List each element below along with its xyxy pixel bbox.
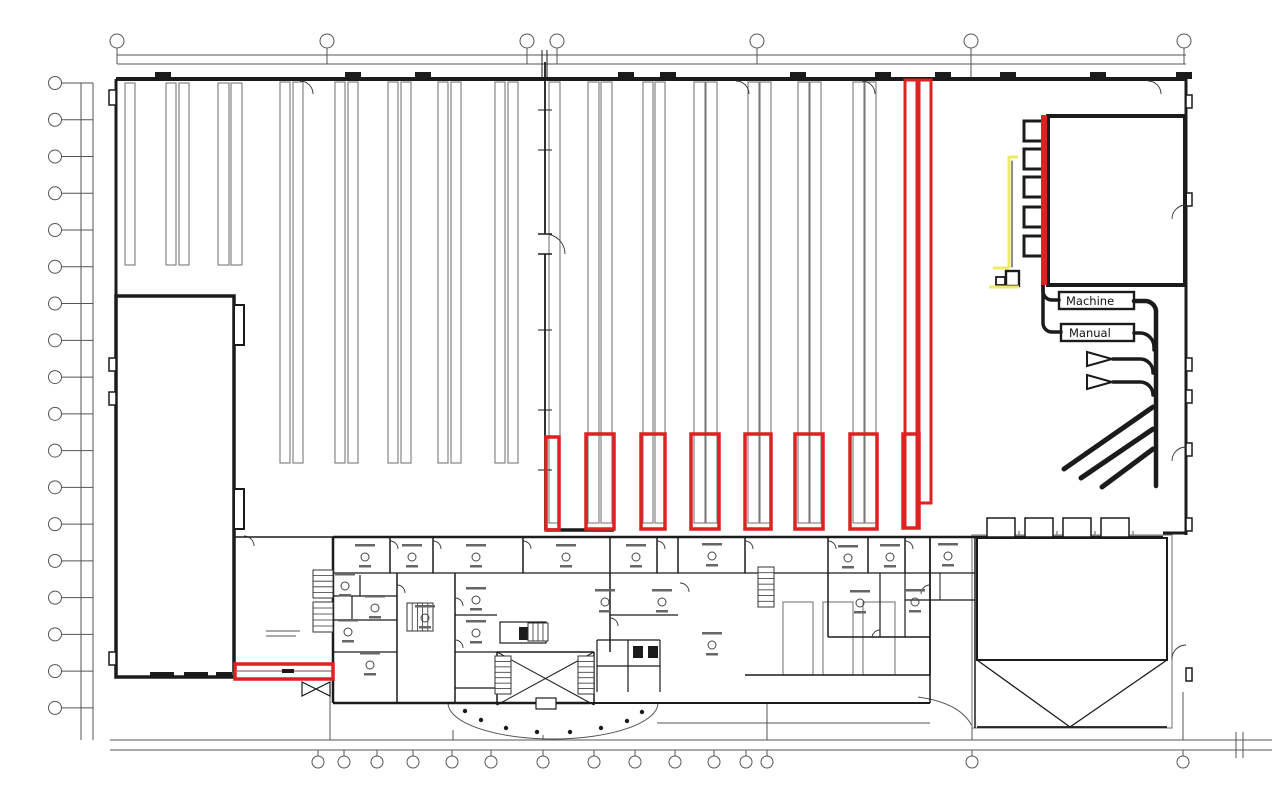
- room-label-mark: [560, 565, 572, 568]
- grid-bubble: [49, 297, 62, 310]
- storage-rack: [293, 82, 303, 463]
- structure-box: [234, 305, 244, 345]
- solid-block: [1000, 72, 1016, 79]
- grid-bubble: [49, 77, 62, 90]
- structure-box: [1186, 95, 1192, 108]
- room-label-mark: [838, 545, 858, 548]
- solid-block: [633, 646, 643, 658]
- storage-rack: [438, 82, 448, 463]
- structure-box: [536, 698, 556, 709]
- room-label-mark: [359, 565, 371, 568]
- grid-bubble: [740, 756, 752, 768]
- storage-rack: [451, 82, 461, 463]
- room-label-mark: [702, 632, 722, 635]
- stairs: [313, 570, 333, 598]
- room-label-mark: [415, 605, 435, 608]
- solid-block: [875, 72, 891, 79]
- room-label-mark: [402, 544, 422, 547]
- storage-rack: [588, 82, 599, 523]
- solid-block: [282, 669, 294, 673]
- room-label-mark: [360, 652, 380, 655]
- solid-block: [345, 72, 361, 79]
- grid-bubble: [49, 224, 62, 237]
- room-label-mark: [365, 595, 385, 598]
- solid-block: [184, 672, 208, 677]
- grid-bubble: [629, 756, 641, 768]
- structure-box: [996, 277, 1005, 285]
- room-label-mark: [556, 544, 576, 547]
- structure-box: [1063, 518, 1091, 537]
- structure-box: [987, 518, 1015, 537]
- storage-rack: [810, 82, 821, 523]
- plaza-dot: [504, 726, 508, 730]
- room-label-mark: [364, 673, 376, 676]
- room-label-mark: [706, 564, 718, 567]
- structure-box: [1101, 518, 1129, 537]
- room-label-mark: [942, 564, 954, 567]
- room-label-mark: [342, 640, 354, 643]
- room-label-mark: [884, 565, 896, 568]
- plaza-dot: [625, 719, 629, 723]
- room-label-mark: [909, 610, 921, 613]
- grid-bubble: [964, 34, 978, 48]
- grid-bubble: [49, 554, 62, 567]
- storage-rack: [495, 82, 505, 463]
- plaza-dot: [463, 709, 467, 713]
- storage-rack: [694, 82, 705, 523]
- grid-bubble: [49, 187, 62, 200]
- storage-rack: [401, 82, 411, 463]
- structure-box: [1186, 390, 1192, 403]
- room-label-mark: [938, 543, 958, 546]
- solid-block: [648, 646, 658, 658]
- storage-rack: [231, 83, 242, 265]
- grid-bubble: [49, 628, 62, 641]
- grid-bubble: [761, 756, 773, 768]
- room-label-mark: [335, 573, 355, 576]
- grid-bubble: [110, 34, 124, 48]
- solid-block: [150, 672, 174, 677]
- storage-rack: [335, 82, 345, 463]
- plaza-dot: [568, 730, 572, 734]
- room-label-mark: [470, 641, 482, 644]
- grid-bubble: [520, 34, 534, 48]
- grid-bubble: [49, 444, 62, 457]
- grid-bubble: [446, 756, 458, 768]
- room-label-mark: [656, 610, 668, 613]
- room-label-mark: [880, 544, 900, 547]
- room-label-mark: [470, 608, 482, 611]
- structure-box: [1186, 668, 1192, 681]
- solid-block: [155, 72, 171, 79]
- room-label-mark: [626, 544, 646, 547]
- grid-bubble: [49, 260, 62, 273]
- structure-box: [116, 296, 234, 677]
- grid-bubble: [588, 756, 600, 768]
- plaza-dot: [599, 726, 603, 730]
- solid-block: [618, 72, 634, 79]
- room-label-mark: [466, 620, 486, 623]
- grid-bubble: [49, 371, 62, 384]
- storage-rack: [706, 82, 717, 523]
- floor-plan-canvas: Machine Manual: [0, 0, 1280, 801]
- storage-rack: [853, 82, 864, 523]
- storage-rack: [179, 83, 189, 265]
- storage-rack: [218, 83, 229, 265]
- solid-block: [216, 672, 232, 677]
- room-label-mark: [470, 565, 482, 568]
- room-label-mark: [595, 589, 615, 592]
- plaza-dot: [535, 730, 539, 734]
- storage-rack: [280, 82, 290, 463]
- solid-block: [935, 72, 951, 79]
- room-label-mark: [466, 544, 486, 547]
- plaza-dot: [640, 710, 644, 714]
- room-label-mark: [630, 565, 642, 568]
- structure-box: [234, 489, 244, 529]
- room-label-mark: [842, 566, 854, 569]
- storage-rack: [643, 82, 653, 523]
- room-label-mark: [854, 611, 866, 614]
- grid-bubble: [49, 701, 62, 714]
- structure-box: [109, 652, 116, 665]
- grid-bubble: [49, 481, 62, 494]
- grid-bubble: [49, 591, 62, 604]
- structure-box: [977, 538, 1167, 660]
- grid-bubble: [407, 756, 419, 768]
- room-label-mark: [466, 587, 486, 590]
- highlight-red-line: [1041, 115, 1047, 285]
- grid-bubble: [750, 34, 764, 48]
- structure-box: [1186, 443, 1192, 456]
- grid-bubble: [49, 518, 62, 531]
- structure-box: [1025, 518, 1053, 537]
- room-label-mark: [338, 619, 358, 622]
- stairs: [313, 602, 333, 632]
- structure-box: [1186, 358, 1192, 371]
- room-label-mark: [652, 589, 672, 592]
- room-label-mark: [369, 616, 381, 619]
- grid-bubble: [669, 756, 681, 768]
- grid-bubble: [49, 113, 62, 126]
- room-label-mark: [355, 544, 375, 547]
- grid-bubble: [1177, 34, 1191, 48]
- grid-bubble: [49, 150, 62, 163]
- grid-bubble: [371, 756, 383, 768]
- room-label-mark: [905, 589, 925, 592]
- storage-rack: [601, 82, 612, 523]
- grid-bubble: [708, 756, 720, 768]
- room-label-mark: [850, 590, 870, 593]
- storage-rack: [125, 83, 135, 265]
- floor-plan-svg: Machine Manual: [0, 0, 1280, 801]
- structure-box: [1006, 271, 1019, 286]
- structure-box: [1048, 116, 1185, 285]
- room-label-mark: [339, 594, 351, 597]
- storage-rack: [348, 82, 358, 463]
- grid-bubble: [312, 756, 324, 768]
- room-label-mark: [599, 610, 611, 613]
- grid-bubble: [550, 34, 564, 48]
- structure-box: [109, 392, 116, 405]
- grid-bubble: [49, 407, 62, 420]
- storage-rack: [865, 82, 876, 523]
- solid-block: [660, 72, 676, 79]
- grid-bubble: [485, 756, 497, 768]
- room-label-mark: [419, 626, 431, 629]
- grid-bubble: [537, 756, 549, 768]
- grid-bubble: [49, 334, 62, 347]
- grid-bubble: [1177, 756, 1189, 768]
- storage-rack: [783, 602, 813, 675]
- storage-rack: [508, 82, 518, 463]
- storage-rack: [748, 82, 759, 523]
- solid-block: [1090, 72, 1106, 79]
- storage-rack: [166, 83, 176, 265]
- manual-label: Manual: [1069, 326, 1111, 340]
- machine-label: Machine: [1066, 294, 1114, 308]
- solid-block: [1176, 72, 1192, 79]
- grid-bubble: [338, 756, 350, 768]
- grid-bubble: [320, 34, 334, 48]
- storage-rack: [388, 82, 398, 463]
- room-label-mark: [706, 653, 718, 656]
- structure-box: [109, 358, 116, 371]
- structure-box: [1186, 518, 1192, 531]
- structure-box: [109, 90, 116, 105]
- solid-block: [790, 72, 806, 79]
- plaza-dot: [479, 718, 483, 722]
- storage-rack: [863, 602, 895, 675]
- grid-bubble: [49, 665, 62, 678]
- room-label-mark: [702, 543, 722, 546]
- grid-bubble: [966, 756, 978, 768]
- room-label-mark: [406, 565, 418, 568]
- storage-rack: [798, 82, 809, 523]
- solid-block: [415, 72, 431, 79]
